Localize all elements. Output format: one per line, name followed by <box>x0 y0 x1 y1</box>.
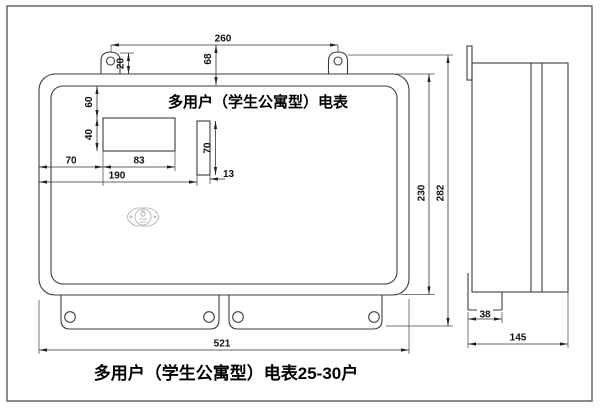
meter-enclosure-drawing: 多用户（学生公寓型）电表 260 20 68 60 40 <box>0 0 600 410</box>
side-body <box>472 63 568 292</box>
terminal-cover-right <box>229 295 382 329</box>
dim-label-145: 145 <box>510 333 527 344</box>
dim-label-68: 68 <box>203 53 214 65</box>
dim-13: 13 <box>210 169 235 184</box>
screw-icon <box>233 312 244 323</box>
dim-70-slot: 70 <box>203 121 216 175</box>
dim-label-13: 13 <box>223 169 235 180</box>
dim-38: 38 <box>468 310 502 324</box>
drawing-border <box>7 6 592 401</box>
dim-label-40: 40 <box>84 129 95 141</box>
dim-20: 20 <box>116 53 135 74</box>
dim-label-60: 60 <box>84 96 95 108</box>
dim-label-521: 521 <box>214 339 231 350</box>
dim-190: 190 <box>39 171 197 187</box>
dim-label-20: 20 <box>116 58 127 70</box>
manufacturer-seal <box>127 208 159 226</box>
dim-260: 260 <box>111 34 338 54</box>
left-hanging-hole <box>107 57 115 65</box>
dimensions-side: 38 145 <box>468 292 568 348</box>
dim-68: 68 <box>203 45 216 85</box>
dimensions-front: 260 20 68 60 40 70 83 <box>39 34 453 355</box>
dim-60: 60 <box>84 86 97 118</box>
dim-label-230: 230 <box>417 184 428 201</box>
dim-label-38: 38 <box>479 310 491 321</box>
screw-icon <box>369 312 380 323</box>
drawing-caption: 多用户（学生公寓型）电表25-30户 <box>94 363 358 383</box>
engineering-drawing-page: 多用户（学生公寓型）电表 260 20 68 60 40 <box>0 0 600 410</box>
dim-70-left: 70 <box>39 156 103 168</box>
screw-icon <box>65 312 76 323</box>
front-view: 多用户（学生公寓型）电表 <box>39 52 409 329</box>
terminal-cover-left <box>61 295 219 329</box>
mounting-plate <box>467 46 472 80</box>
dim-40: 40 <box>84 118 97 151</box>
dim-label-282: 282 <box>436 184 447 201</box>
dim-label-260: 260 <box>215 34 232 45</box>
dim-label-70-slot: 70 <box>203 142 214 154</box>
meter-window <box>103 118 175 151</box>
dim-label-190: 190 <box>109 171 126 182</box>
side-view <box>467 46 568 310</box>
right-hanging-hole <box>334 57 342 65</box>
front-panel-title: 多用户（学生公寓型）电表 <box>168 93 349 111</box>
right-mounting-ear <box>329 52 348 74</box>
dim-282: 282 <box>348 55 453 326</box>
screw-icon <box>204 312 215 323</box>
dim-521: 521 <box>39 299 409 354</box>
dim-label-70-left: 70 <box>65 156 77 167</box>
dim-label-83: 83 <box>133 156 145 167</box>
dim-230: 230 <box>396 74 435 295</box>
